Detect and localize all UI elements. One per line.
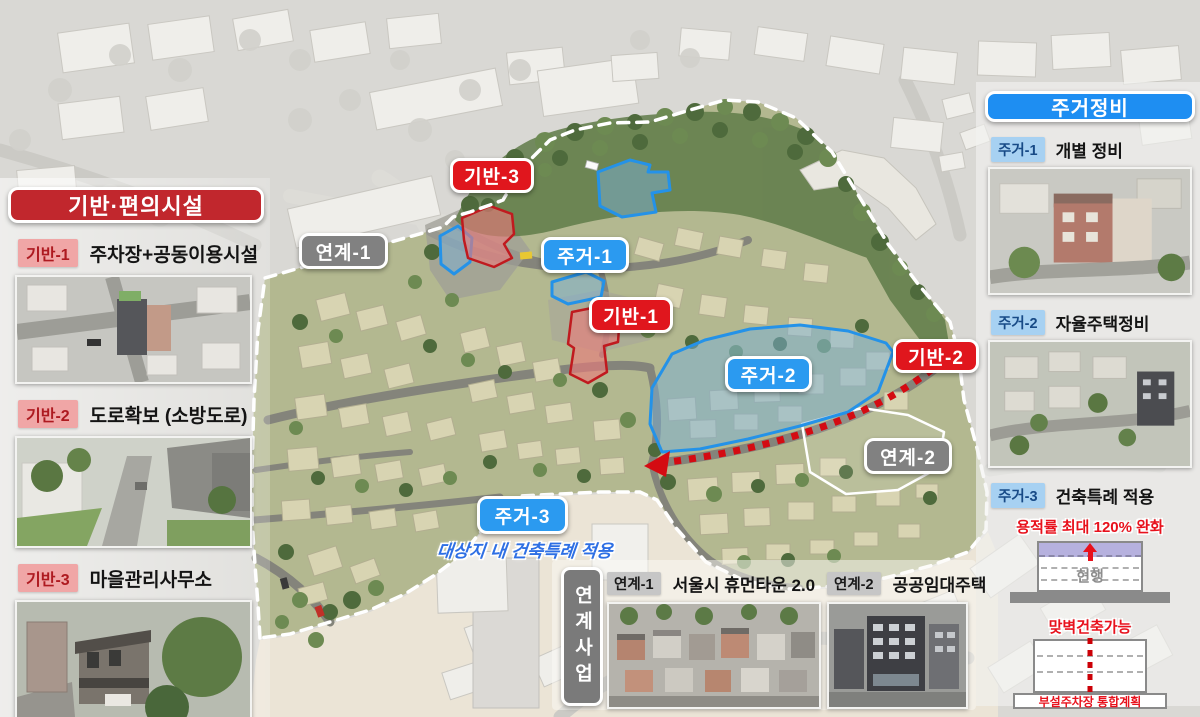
map-label-jugeo1: 주거-1: [541, 237, 629, 273]
infra-label-1: 주차장+공동이용시설: [90, 240, 258, 267]
integrated-parking-label: 부설주차장 통합계획: [1015, 695, 1165, 707]
linked-label-2: 공공임대주택: [893, 571, 987, 596]
linked-badge-2: 연계-2: [827, 572, 881, 595]
infra-item-2: 기반-2 도로확보 (소방도로): [8, 400, 264, 548]
infra-item-1: 기반-1 주차장+공동이용시설: [8, 239, 264, 384]
housing-label-3: 건축특례 적용: [1056, 483, 1155, 508]
map-label-giban1: 기반-1: [589, 297, 673, 333]
housing-photo-autonomous: [988, 340, 1192, 468]
infra-photo-parking: [15, 275, 252, 384]
linked-badge-1: 연계-1: [607, 572, 661, 595]
linked-item-1: 연계-1 서울시 휴먼타운 2.0: [607, 571, 821, 709]
infra-badge-3: 기반-3: [18, 564, 78, 592]
far-diagram: 현행: [1010, 541, 1170, 603]
housing-panel: 주거정비 주거-1 개별 정비: [985, 91, 1195, 709]
map-label-giban3: 기반-3: [450, 158, 534, 193]
linked-projects-title: 연계사업: [561, 567, 603, 706]
housing-badge-3: 주거-3: [991, 483, 1045, 508]
map-label-yeongye2: 연계-2: [864, 438, 952, 474]
infra-badge-1: 기반-1: [18, 239, 78, 267]
linked-item-2: 연계-2 공공임대주택: [827, 571, 986, 709]
redevelopment-plan-poster: 기반-3 연계-1 주거-1 기반-1 주거-2 기반-2 연계-2 주거-3 …: [0, 0, 1200, 717]
linked-photo-rental: [827, 602, 968, 709]
integrated-parking-base: 부설주차장 통합계획: [1013, 693, 1167, 709]
housing-item-3: 주거-3 건축특례 적용 용적률 최대 120% 완화 현행 맞벽건축가능: [985, 483, 1195, 709]
far-relax-caption: 용적률 최대 120% 완화: [985, 516, 1195, 537]
infra-label-3: 마을관리사무소: [90, 565, 212, 592]
housing-panel-title: 주거정비: [985, 91, 1195, 122]
infra-badge-2: 기반-2: [18, 400, 78, 428]
map-annotation: 대상지 내 건축특례 적용: [436, 538, 614, 563]
infra-label-2: 도로확보 (소방도로): [90, 401, 248, 428]
housing-badge-1: 주거-1: [991, 137, 1045, 162]
linked-photo-humantown: [607, 602, 821, 709]
housing-label-2: 자율주택정비: [1056, 310, 1150, 335]
housing-badge-2: 주거-2: [991, 310, 1045, 335]
infra-photo-office: [15, 600, 252, 717]
party-wall-caption: 맞벽건축가능: [985, 616, 1195, 637]
map-label-yeongye1: 연계-1: [299, 233, 388, 269]
housing-label-1: 개별 정비: [1056, 137, 1123, 162]
infra-panel: 기반·편의시설 기반-1 주차장+공동이용시설: [8, 187, 264, 717]
linked-label-1: 서울시 휴먼타운 2.0: [673, 571, 816, 596]
party-wall-building: [1033, 639, 1147, 693]
up-arrow-icon: [1083, 543, 1097, 563]
infra-photo-road: [15, 436, 252, 548]
party-wall-diagram: 부설주차장 통합계획: [1010, 639, 1170, 709]
infra-panel-title: 기반·편의시설: [8, 187, 264, 223]
map-label-jugeo3: 주거-3: [477, 496, 568, 534]
infra-item-3: 기반-3 마을관리사무소: [8, 564, 264, 717]
housing-photo-individual: [988, 167, 1192, 295]
housing-item-1: 주거-1 개별 정비: [985, 137, 1195, 295]
map-label-giban2: 기반-2: [893, 339, 979, 373]
far-diagram-ground: [1010, 592, 1170, 603]
far-diagram-building: 현행: [1037, 541, 1143, 592]
current-floors-label: 현행: [1039, 565, 1141, 586]
map-label-jugeo2: 주거-2: [725, 356, 812, 392]
housing-item-2: 주거-2 자율주택정비: [985, 310, 1195, 468]
